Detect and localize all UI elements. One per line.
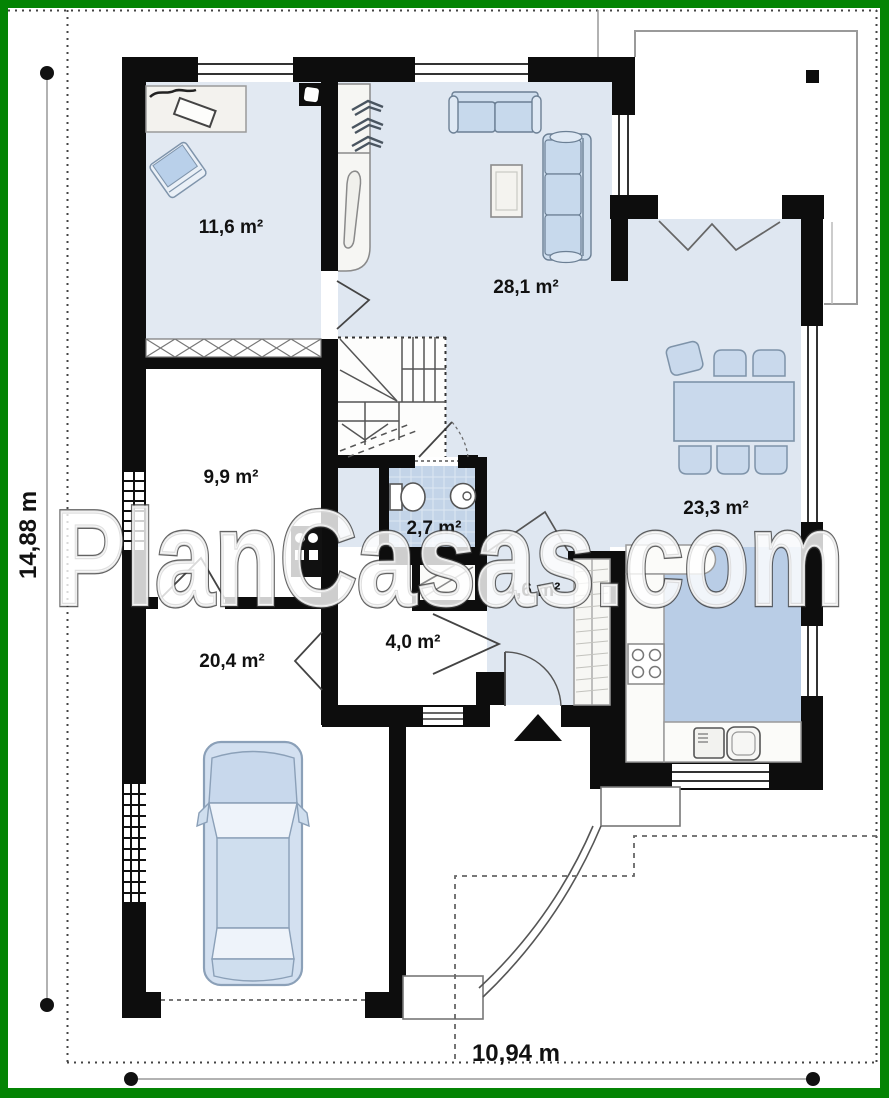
svg-text:20,4 m²: 20,4 m² bbox=[199, 651, 264, 672]
svg-text:4,0 m²: 4,0 m² bbox=[386, 632, 441, 653]
svg-text:28,1 m²: 28,1 m² bbox=[493, 277, 558, 298]
svg-text:11,6 m²: 11,6 m² bbox=[199, 217, 263, 238]
svg-text:PlanCasas.com: PlanCasas.com bbox=[54, 482, 844, 634]
svg-text:14,88 m: 14,88 m bbox=[15, 491, 42, 579]
svg-text:10,94 m: 10,94 m bbox=[472, 1040, 560, 1067]
